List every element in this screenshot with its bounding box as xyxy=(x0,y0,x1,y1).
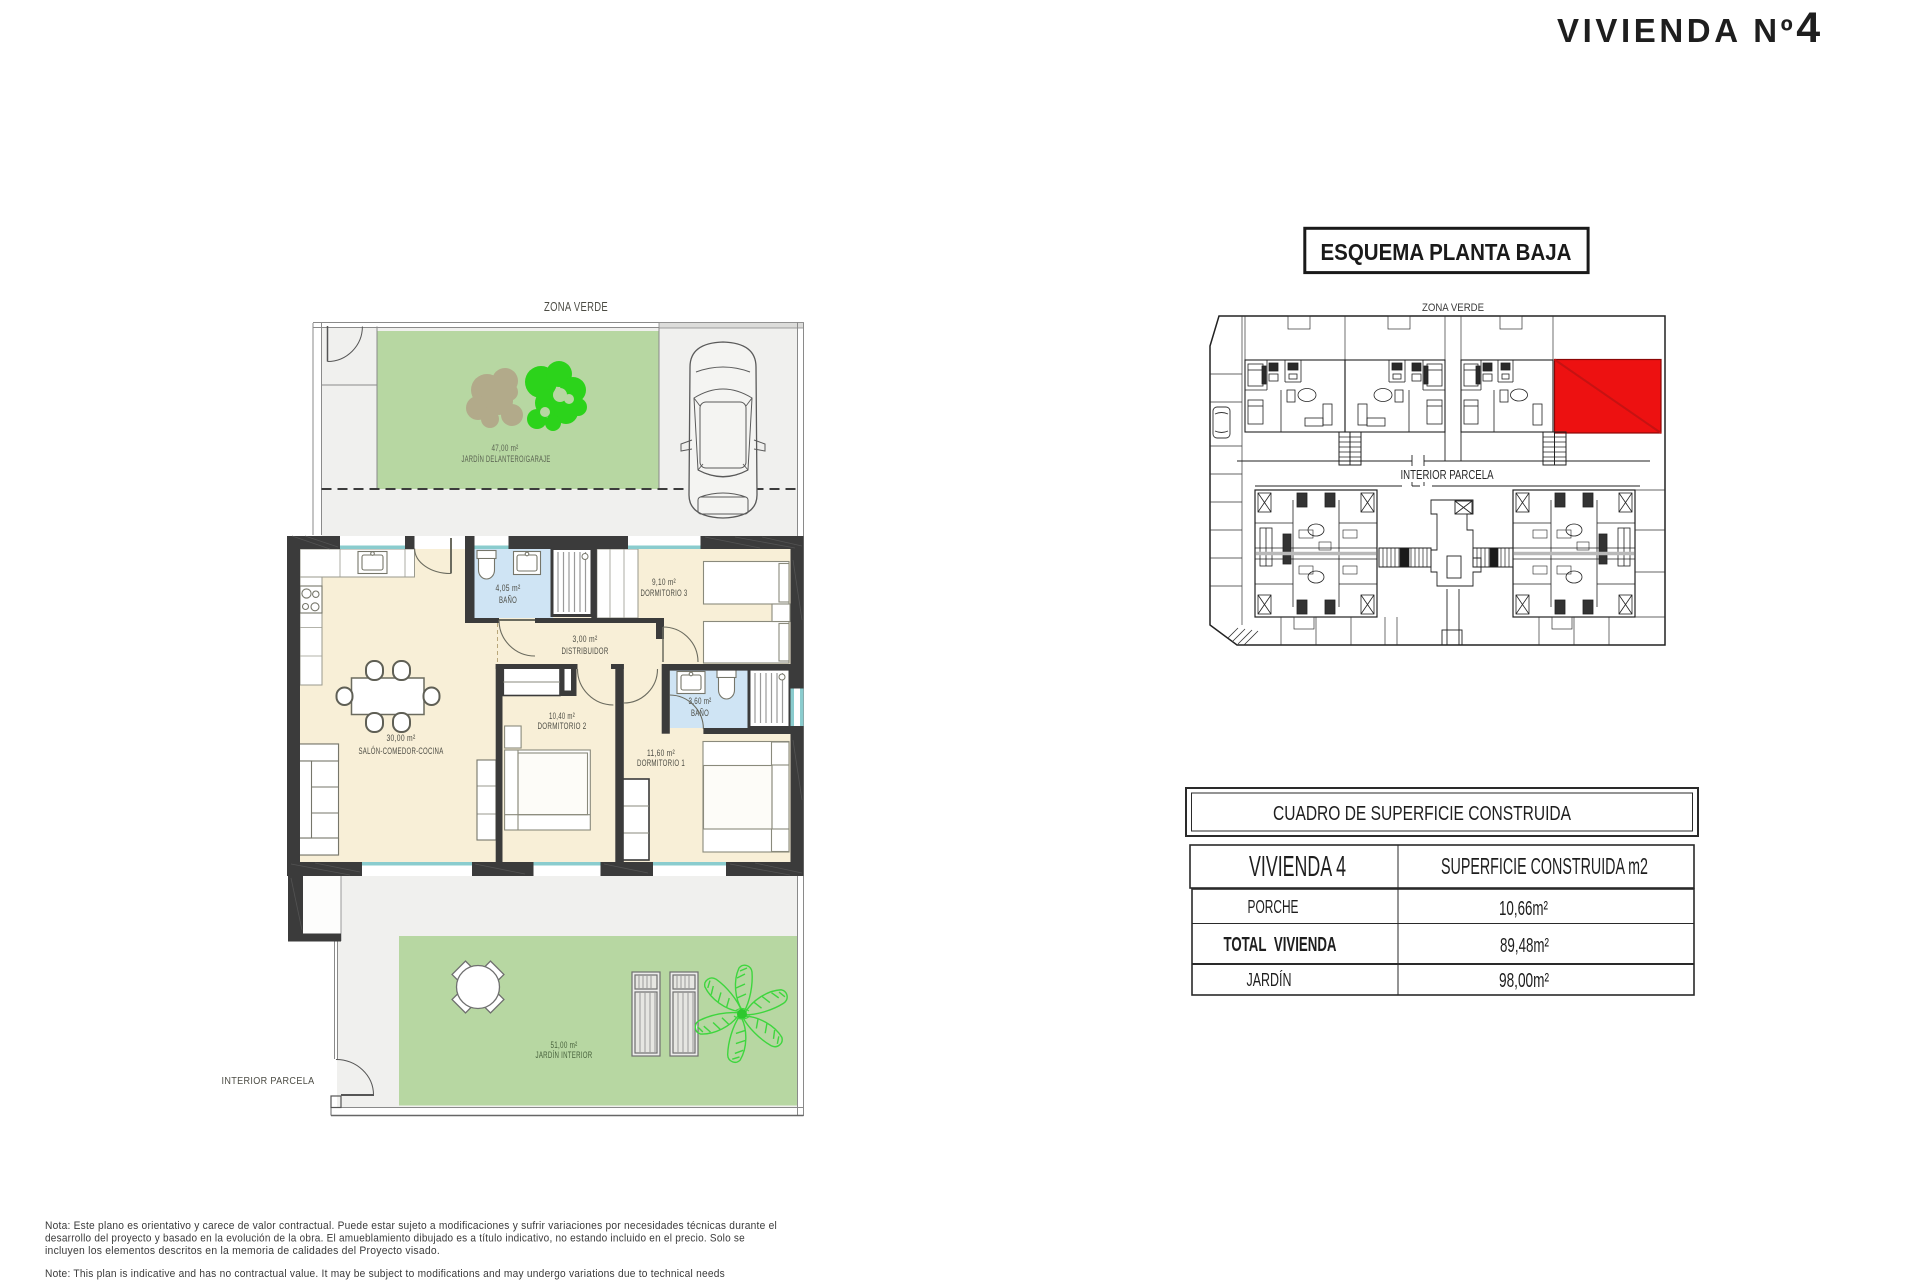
svg-text:BAÑO: BAÑO xyxy=(499,595,517,606)
svg-text:desarrollo del proyecto y basa: desarrollo del proyecto y basado en la e… xyxy=(45,1233,745,1245)
svg-text:INTERIOR PARCELA: INTERIOR PARCELA xyxy=(1401,468,1495,482)
svg-text:89,48m²: 89,48m² xyxy=(1500,934,1549,957)
svg-text:DORMITORIO 1: DORMITORIO 1 xyxy=(637,758,685,769)
svg-text:9,10 m²: 9,10 m² xyxy=(652,577,676,588)
svg-text:ZONA VERDE: ZONA VERDE xyxy=(1422,302,1484,314)
svg-text:TOTAL VIVIENDA: TOTAL VIVIENDA xyxy=(1224,934,1337,956)
svg-text:10,66m²: 10,66m² xyxy=(1499,897,1548,920)
svg-text:BAÑO: BAÑO xyxy=(691,708,709,719)
svg-text:4,05 m²: 4,05 m² xyxy=(496,583,521,594)
svg-text:JARDÍN: JARDÍN xyxy=(1247,970,1292,990)
svg-text:JARDÍN DELANTERO/GARAJE: JARDÍN DELANTERO/GARAJE xyxy=(462,454,551,465)
svg-text:Nota: Este plano es orientativ: Nota: Este plano es orientativo y carece… xyxy=(45,1220,777,1232)
svg-text:incluyen los elementos descrit: incluyen los elementos descritos en la m… xyxy=(45,1245,440,1257)
svg-text:JARDÍN INTERIOR: JARDÍN INTERIOR xyxy=(536,1050,593,1061)
svg-text:3,60 m²: 3,60 m² xyxy=(689,696,712,707)
svg-text:SALÓN-COMEDOR-COCINA: SALÓN-COMEDOR-COCINA xyxy=(359,746,444,757)
svg-text:98,00m²: 98,00m² xyxy=(1499,969,1549,992)
svg-text:3,00 m²: 3,00 m² xyxy=(573,634,598,645)
svg-text:VIVIENDA Nº4: VIVIENDA Nº4 xyxy=(1557,4,1824,52)
svg-text:CUADRO DE SUPERFICIE CONSTRUID: CUADRO DE SUPERFICIE CONSTRUIDA xyxy=(1273,803,1572,825)
svg-text:SUPERFICIE CONSTRUIDA m2: SUPERFICIE CONSTRUIDA m2 xyxy=(1441,853,1648,879)
svg-text:DORMITORIO 2: DORMITORIO 2 xyxy=(538,721,587,732)
svg-text:ZONA VERDE: ZONA VERDE xyxy=(544,300,608,314)
svg-text:DORMITORIO 3: DORMITORIO 3 xyxy=(641,588,688,599)
svg-text:PORCHE: PORCHE xyxy=(1248,897,1299,917)
svg-text:Note: This plan is indicative: Note: This plan is indicative and has no… xyxy=(45,1268,725,1280)
svg-text:47,00 m²: 47,00 m² xyxy=(492,443,519,454)
svg-text:DISTRIBUIDOR: DISTRIBUIDOR xyxy=(562,646,609,657)
svg-text:INTERIOR PARCELA: INTERIOR PARCELA xyxy=(222,1075,315,1087)
svg-text:30,00 m²: 30,00 m² xyxy=(387,733,416,744)
svg-text:ESQUEMA PLANTA BAJA: ESQUEMA PLANTA BAJA xyxy=(1321,239,1572,265)
svg-text:VIVIENDA 4: VIVIENDA 4 xyxy=(1249,851,1346,883)
